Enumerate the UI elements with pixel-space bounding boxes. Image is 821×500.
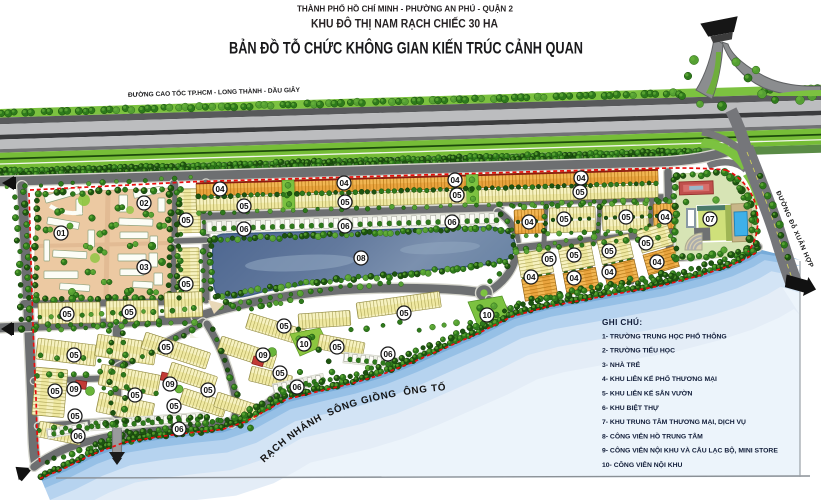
svg-text:05: 05: [203, 386, 213, 395]
svg-text:04: 04: [569, 274, 579, 283]
svg-text:04: 04: [576, 174, 586, 183]
svg-text:05: 05: [621, 213, 631, 222]
svg-text:09: 09: [258, 351, 268, 360]
svg-text:03: 03: [139, 263, 149, 272]
svg-text:05: 05: [604, 247, 614, 256]
svg-text:05: 05: [161, 343, 171, 352]
svg-text:06: 06: [447, 218, 457, 227]
svg-text:2- TRƯỜNG TIỂU HỌC: 2- TRƯỜNG TIỂU HỌC: [602, 346, 675, 355]
svg-text:BẢN ĐỒ TỖ CHỨC KHÔNG GIAN KIẾN: BẢN ĐỒ TỖ CHỨC KHÔNG GIAN KIẾN TRÚC CẢNH…: [229, 39, 583, 58]
svg-text:06: 06: [340, 222, 350, 231]
svg-text:05: 05: [575, 188, 585, 197]
svg-text:05: 05: [279, 322, 289, 331]
svg-text:06: 06: [292, 383, 302, 392]
svg-text:05: 05: [569, 251, 579, 260]
svg-text:05: 05: [70, 412, 80, 421]
svg-text:10: 10: [482, 311, 492, 320]
svg-text:05: 05: [130, 391, 140, 400]
svg-text:07: 07: [705, 215, 715, 224]
svg-text:04: 04: [339, 179, 349, 188]
svg-text:10- CÔNG VIÊN NỘI KHU: 10- CÔNG VIÊN NỘI KHU: [602, 460, 683, 469]
svg-text:05: 05: [169, 402, 179, 411]
svg-text:05: 05: [452, 191, 462, 200]
svg-text:06: 06: [239, 225, 249, 234]
svg-text:05: 05: [544, 255, 554, 264]
svg-text:05: 05: [641, 239, 651, 248]
svg-text:3- NHÀ TRẺ: 3- NHÀ TRẺ: [602, 360, 641, 369]
svg-text:04: 04: [215, 185, 225, 194]
svg-text:THÀNH PHỐ HỒ CHÍ MINH - PHƯỜNG: THÀNH PHỐ HỒ CHÍ MINH - PHƯỜNG AN PHÚ - …: [297, 3, 513, 14]
svg-text:04: 04: [604, 268, 614, 277]
svg-text:05: 05: [559, 215, 569, 224]
svg-text:05: 05: [332, 343, 342, 352]
svg-text:05: 05: [239, 202, 249, 211]
svg-text:05: 05: [181, 280, 191, 289]
svg-text:05: 05: [62, 310, 72, 319]
svg-text:9- CÔNG VIÊN NỘI KHU VÀ CÂU L: 9- CÔNG VIÊN NỘI KHU VÀ CÂU LẠC BỘ, MINI…: [602, 446, 778, 455]
svg-text:04: 04: [450, 176, 460, 185]
svg-text:10: 10: [299, 340, 309, 349]
svg-text:05: 05: [69, 351, 79, 360]
svg-text:7- KHU TRUNG TÂM THƯƠNG MẠI, D: 7- KHU TRUNG TÂM THƯƠNG MẠI, DỊCH VỤ: [602, 417, 746, 426]
svg-text:1- TRƯỜNG TRUNG HỌC PHỔ THÔNG: 1- TRƯỜNG TRUNG HỌC PHỔ THÔNG: [602, 331, 727, 340]
svg-text:05: 05: [50, 387, 60, 396]
svg-text:08: 08: [356, 254, 366, 263]
svg-text:09: 09: [165, 380, 175, 389]
svg-text:6- KHU BIỆT THỰ: 6- KHU BIỆT THỰ: [602, 403, 659, 412]
svg-text:02: 02: [139, 199, 149, 208]
svg-text:05: 05: [275, 369, 285, 378]
svg-text:04: 04: [660, 213, 670, 222]
svg-text:04: 04: [652, 258, 662, 267]
svg-text:05: 05: [124, 308, 134, 317]
svg-text:05: 05: [181, 216, 191, 225]
svg-text:06: 06: [383, 350, 393, 359]
svg-text:09: 09: [69, 385, 79, 394]
svg-text:05: 05: [399, 309, 409, 318]
svg-text:01: 01: [56, 229, 66, 238]
svg-text:04: 04: [524, 218, 534, 227]
svg-text:KHU ĐÔ THỊ NAM RẠCH CHIẾC 30 H: KHU ĐÔ THỊ NAM RẠCH CHIẾC 30 HA: [311, 16, 498, 31]
svg-text:05: 05: [340, 198, 350, 207]
svg-text:GHI CHÚ:: GHI CHÚ:: [602, 316, 643, 327]
svg-text:04: 04: [526, 273, 536, 282]
svg-text:06: 06: [73, 432, 83, 441]
svg-text:06: 06: [174, 425, 184, 434]
